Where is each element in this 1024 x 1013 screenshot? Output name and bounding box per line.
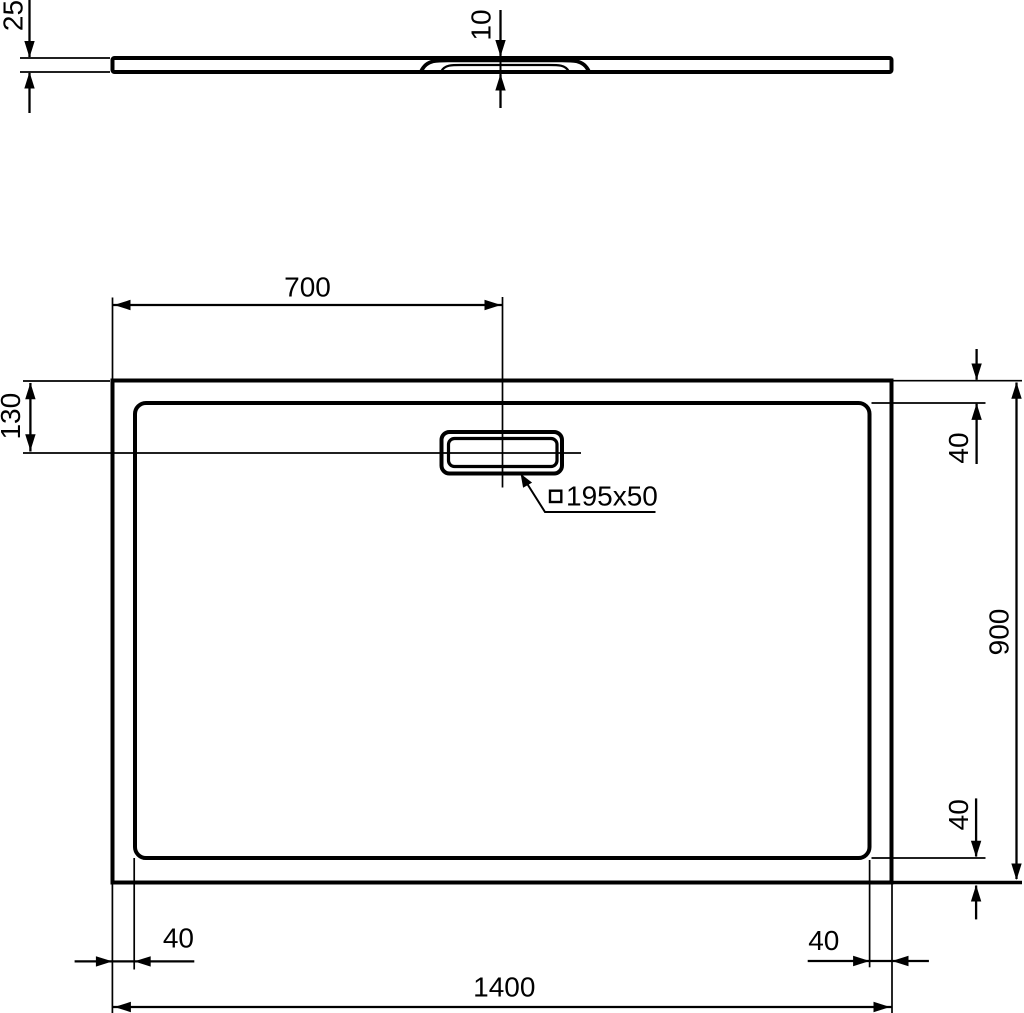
svg-text:40: 40 xyxy=(808,925,839,956)
svg-text:40: 40 xyxy=(943,432,974,463)
svg-text:900: 900 xyxy=(984,609,1015,656)
svg-text:130: 130 xyxy=(0,393,26,440)
svg-text:195x50: 195x50 xyxy=(566,481,658,512)
svg-text:40: 40 xyxy=(163,923,194,954)
svg-text:10: 10 xyxy=(466,9,497,40)
svg-text:700: 700 xyxy=(284,272,331,303)
svg-text:1400: 1400 xyxy=(473,971,535,1002)
svg-text:25: 25 xyxy=(0,0,29,31)
svg-text:40: 40 xyxy=(943,799,974,830)
